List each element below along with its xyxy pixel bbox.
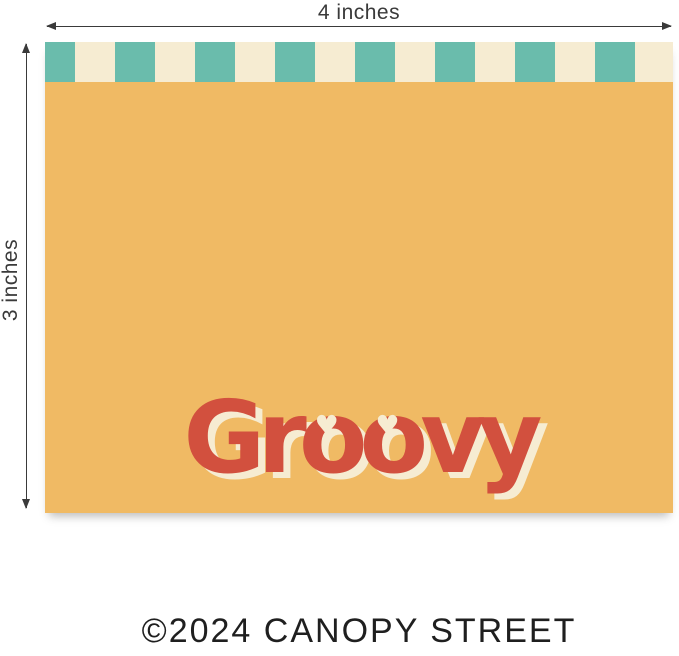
stripe-block bbox=[355, 42, 395, 82]
stripe-block bbox=[275, 42, 315, 82]
stripe-block bbox=[595, 42, 635, 82]
stripe-block bbox=[555, 42, 595, 82]
heart-icon: ♥ bbox=[315, 412, 339, 439]
stripe-block bbox=[75, 42, 115, 82]
stripe-block bbox=[195, 42, 235, 82]
copyright-text: ©2024 CANOPY STREET bbox=[45, 612, 673, 651]
notecard: Gro♥o♥vy bbox=[45, 42, 673, 513]
card-title: Gro♥o♥vy bbox=[45, 388, 673, 488]
title-letter: v bbox=[420, 379, 477, 496]
height-dimension-label: 3 inches bbox=[0, 215, 23, 345]
title-letter: G bbox=[183, 379, 257, 496]
stripe-block bbox=[435, 42, 475, 82]
stripe-block bbox=[235, 42, 275, 82]
stripe-block bbox=[315, 42, 355, 82]
heart-icon: ♥ bbox=[375, 412, 399, 439]
width-dimension-label: 4 inches bbox=[45, 1, 673, 25]
checkered-stripe bbox=[45, 42, 673, 82]
title-letter: o♥ bbox=[299, 379, 360, 496]
stripe-block bbox=[155, 42, 195, 82]
title-letter: y bbox=[477, 379, 534, 496]
stripe-block bbox=[475, 42, 515, 82]
stripe-block bbox=[115, 42, 155, 82]
product-image: 4 inches 3 inches Gro♥o♥vy ©2024 CANOPY … bbox=[0, 0, 679, 656]
width-dimension-arrow-icon bbox=[47, 26, 671, 27]
title-letter: o♥ bbox=[360, 379, 421, 496]
stripe-block bbox=[515, 42, 555, 82]
title-letter: r bbox=[257, 379, 298, 496]
stripe-block bbox=[45, 42, 75, 82]
stripe-block bbox=[635, 42, 673, 82]
stripe-block bbox=[395, 42, 435, 82]
height-dimension-arrow-icon bbox=[26, 44, 27, 508]
